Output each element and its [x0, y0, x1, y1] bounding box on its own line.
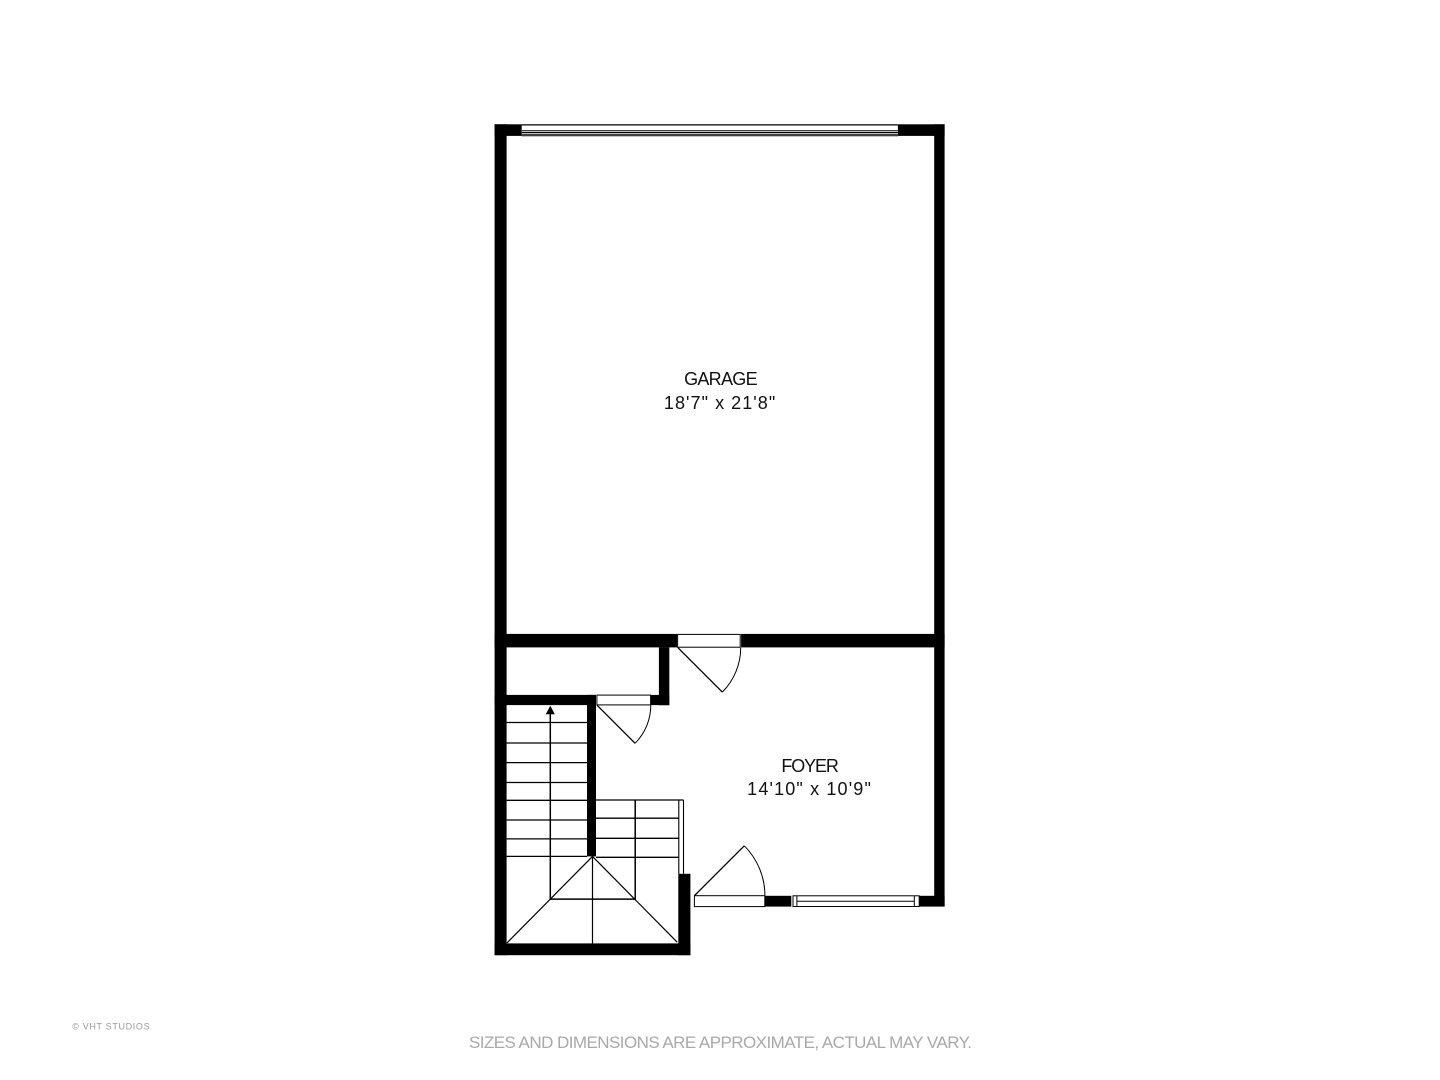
- svg-text:FOYER: FOYER: [781, 756, 839, 776]
- svg-text:GARAGE: GARAGE: [684, 369, 758, 389]
- svg-text:14'10" x 10'9": 14'10" x 10'9": [747, 779, 872, 799]
- svg-text:© VHT STUDIOS: © VHT STUDIOS: [72, 1021, 150, 1031]
- svg-text:18'7" x 21'8": 18'7" x 21'8": [664, 393, 776, 413]
- svg-text:SIZES AND DIMENSIONS ARE APPRO: SIZES AND DIMENSIONS ARE APPROXIMATE, AC…: [469, 1033, 972, 1052]
